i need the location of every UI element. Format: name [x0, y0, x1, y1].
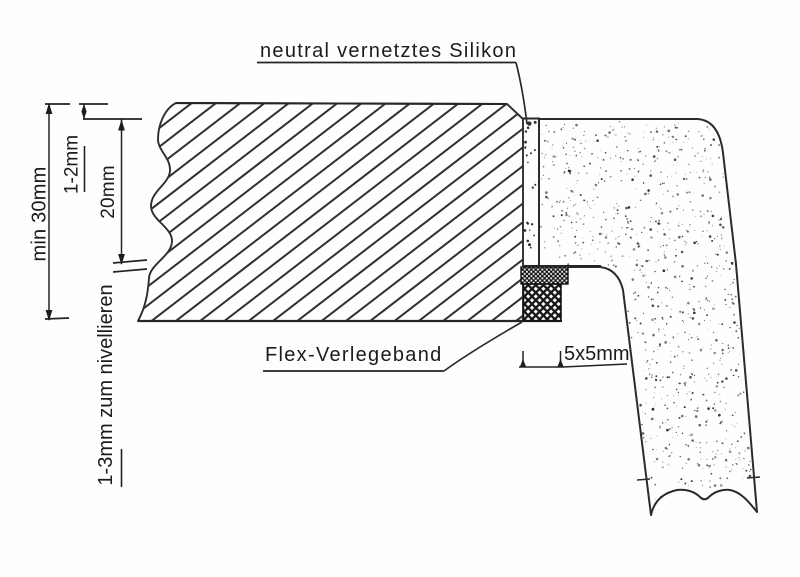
svg-text:min 30mm: min 30mm: [29, 167, 51, 262]
svg-text:1-2mm: 1-2mm: [62, 135, 83, 194]
svg-text:Flex-Verlegeband: Flex-Verlegeband: [265, 344, 443, 366]
svg-text:1-3mm zum nivellieren: 1-3mm zum nivellieren: [95, 284, 117, 485]
svg-text:neutral vernetztes Silikon: neutral vernetztes Silikon: [260, 40, 517, 62]
svg-text:20mm: 20mm: [98, 165, 119, 219]
svg-text:5x5mm: 5x5mm: [564, 343, 630, 365]
